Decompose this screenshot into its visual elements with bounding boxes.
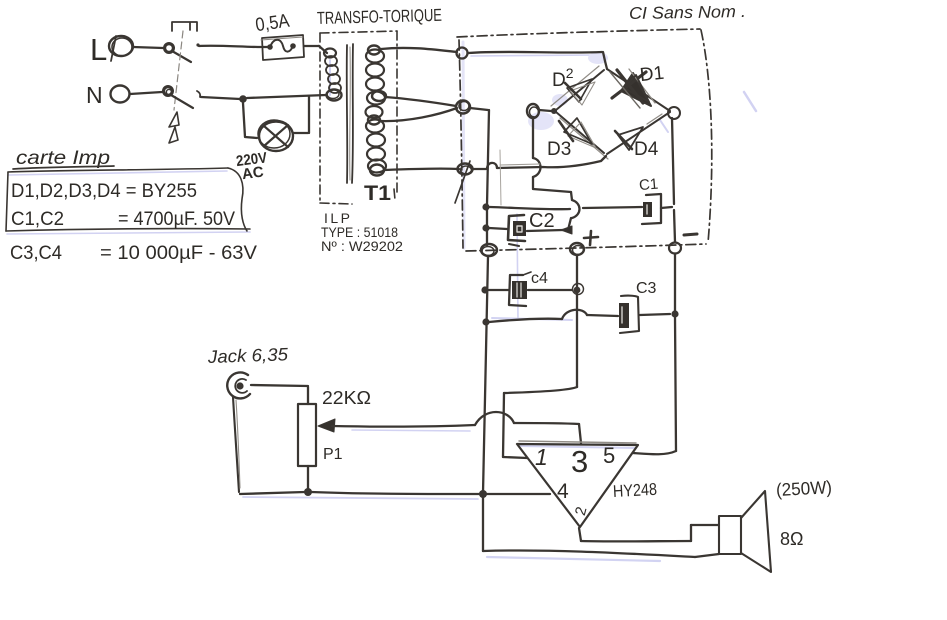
svg-text:ILP: ILP <box>324 210 353 226</box>
svg-text:L: L <box>90 32 107 67</box>
svg-text:CI Sans Nom .: CI Sans Nom . <box>629 2 746 23</box>
svg-text:1: 1 <box>535 444 548 470</box>
svg-text:5: 5 <box>603 443 615 468</box>
svg-text:C1,C2: C1,C2 <box>11 209 64 230</box>
svg-text:AC: AC <box>241 164 265 184</box>
svg-text:TYPE : 51018: TYPE : 51018 <box>321 225 398 240</box>
svg-text:Nº : W29202: Nº : W29202 <box>321 239 403 254</box>
svg-text:4: 4 <box>557 480 569 503</box>
svg-text:8Ω: 8Ω <box>780 529 803 549</box>
svg-text:T1: T1 <box>364 182 391 205</box>
svg-text:(250W): (250W) <box>775 477 832 500</box>
svg-text:22KΩ: 22KΩ <box>322 388 371 408</box>
svg-text:HY248: HY248 <box>612 480 657 501</box>
svg-text:c4: c4 <box>531 270 548 287</box>
svg-text:TRANSFO-TORIQUE: TRANSFO-TORIQUE <box>317 5 442 28</box>
svg-text:Jack 6,35: Jack 6,35 <box>207 344 290 367</box>
svg-text:D4: D4 <box>634 139 659 160</box>
svg-text:C3,C4: C3,C4 <box>10 243 62 264</box>
svg-text:3: 3 <box>571 444 588 479</box>
svg-text:D1: D1 <box>639 63 665 86</box>
svg-text:C1: C1 <box>638 176 659 195</box>
svg-text:C2: C2 <box>529 210 555 232</box>
svg-text:D1,D2,D3,D4 = BY255: D1,D2,D3,D4 = BY255 <box>11 181 197 202</box>
svg-text:D3: D3 <box>547 139 571 160</box>
svg-text:= 4700µF. 50V: = 4700µF. 50V <box>118 209 235 230</box>
svg-text:= 10 000µF - 63V: = 10 000µF - 63V <box>100 243 257 264</box>
svg-text:C3: C3 <box>636 280 657 297</box>
svg-text:P1: P1 <box>323 446 343 463</box>
svg-text:N: N <box>86 82 103 108</box>
